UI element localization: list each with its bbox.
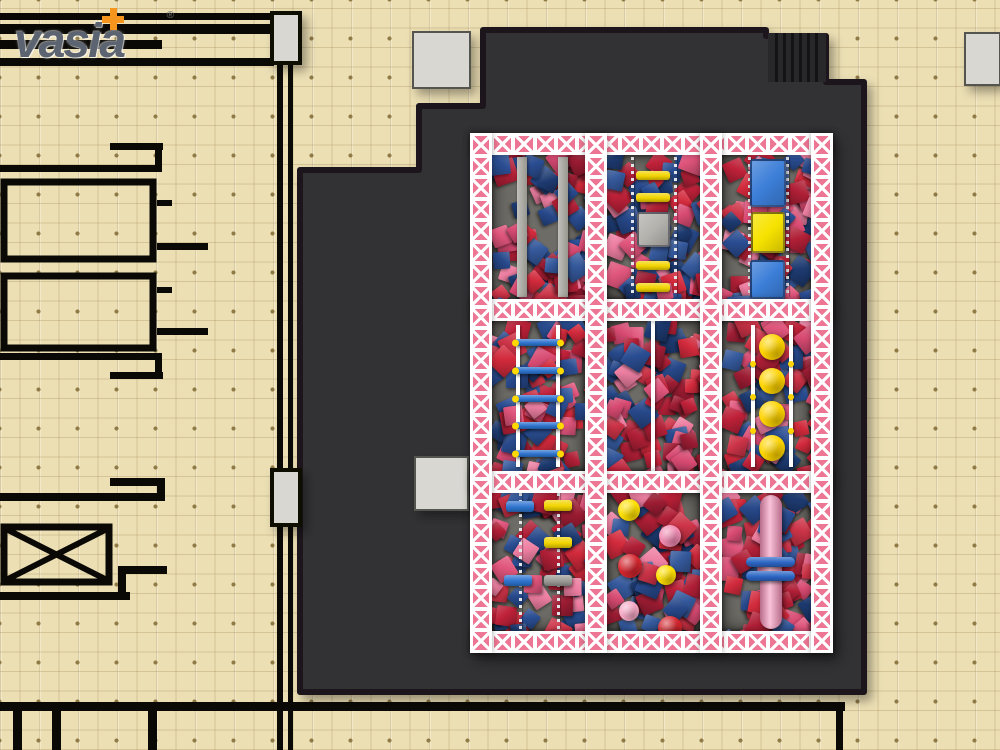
truss-cell — [641, 300, 662, 320]
truss-cell — [812, 242, 832, 264]
stair-step — [807, 33, 810, 82]
truss-cell — [812, 544, 832, 566]
truss-cell — [586, 522, 606, 544]
ninja-bar-gray — [544, 575, 572, 586]
platform-pad-gray — [637, 212, 670, 247]
truss-cell — [701, 307, 721, 329]
wall-stub — [157, 287, 172, 293]
truss-cell — [535, 472, 556, 492]
truss-cell — [556, 472, 577, 492]
truss-cell — [586, 587, 606, 609]
foam-pit-cell-r3c1 — [492, 493, 585, 631]
truss-band-vertical — [700, 133, 722, 653]
truss-cell — [812, 156, 832, 178]
wall-line — [110, 478, 165, 486]
truss-cell — [586, 199, 606, 221]
rung-yellow — [636, 171, 670, 180]
chain — [631, 157, 634, 297]
truss-cell — [586, 371, 606, 393]
truss-cell — [471, 156, 491, 178]
truss-cell — [471, 350, 491, 372]
truss-band-horizontal — [470, 133, 833, 155]
truss-cell — [701, 458, 721, 480]
chain — [557, 493, 560, 629]
truss-cell — [471, 199, 491, 221]
truss-cell — [812, 630, 832, 652]
foam-ball-pink — [659, 525, 681, 547]
truss-cell — [812, 393, 832, 415]
ninja-bar-yellow — [544, 500, 572, 511]
truss-cell — [701, 350, 721, 372]
wall-line — [836, 702, 843, 750]
truss-cell — [620, 472, 641, 492]
truss-cell — [556, 134, 577, 154]
truss-cell — [492, 300, 513, 320]
truss-cell — [701, 242, 721, 264]
rung-blue — [514, 422, 562, 429]
truss-cell — [701, 328, 721, 350]
foam-cube — [492, 155, 511, 176]
rung-cap — [512, 367, 519, 374]
rung-yellow — [636, 261, 670, 270]
truss-cell — [586, 328, 606, 350]
pillar — [413, 32, 470, 88]
wall-line — [0, 165, 158, 172]
truss-cell — [492, 472, 513, 492]
stair-step — [799, 33, 802, 82]
foam-ball-yellow — [656, 565, 676, 585]
truss-cell — [790, 300, 811, 320]
truss-cell — [768, 632, 789, 652]
truss-cell — [586, 630, 606, 652]
stair-step — [783, 33, 786, 82]
truss-cell — [620, 134, 641, 154]
truss-cell — [812, 307, 832, 329]
truss-cell — [812, 371, 832, 393]
scene: vasia ® — [0, 0, 1000, 750]
truss-cell — [586, 285, 606, 307]
ninja-bar-blue — [504, 575, 532, 586]
truss-cell — [812, 415, 832, 437]
truss-cell — [812, 350, 832, 372]
wall-stub — [157, 243, 208, 250]
truss-cell — [471, 242, 491, 264]
truss-cell — [471, 415, 491, 437]
chain — [786, 157, 789, 297]
truss-cell — [701, 436, 721, 458]
truss-cell — [471, 479, 491, 501]
truss-cell — [662, 472, 683, 492]
truss-cell — [586, 566, 606, 588]
wall-line — [0, 353, 157, 360]
truss-cell — [471, 328, 491, 350]
pole-ring-blue — [746, 557, 795, 567]
truss-cell — [586, 263, 606, 285]
truss-cell — [768, 134, 789, 154]
truss-cell — [586, 415, 606, 437]
rung-cap — [557, 367, 564, 374]
foam-cube — [678, 336, 700, 358]
foam-cube — [794, 434, 811, 454]
truss-cell — [701, 393, 721, 415]
wall-line — [288, 63, 293, 750]
truss-cell — [471, 220, 491, 242]
truss-cell — [701, 415, 721, 437]
truss-cell — [513, 300, 534, 320]
truss-cell — [471, 436, 491, 458]
rung-yellow — [636, 283, 670, 292]
truss-cell — [701, 609, 721, 631]
truss-cell — [701, 501, 721, 523]
truss-cell — [812, 285, 832, 307]
rung-blue — [514, 339, 562, 346]
truss-cell — [812, 479, 832, 501]
truss-band-horizontal — [470, 631, 833, 653]
truss-band-vertical — [811, 133, 833, 653]
rail-dot — [750, 394, 756, 400]
climb-pad-yellow — [751, 212, 785, 253]
truss-cell — [768, 472, 789, 492]
foam-cube — [800, 286, 811, 299]
climb-pad-blue — [750, 159, 786, 207]
ninja-bar-blue — [506, 501, 534, 512]
truss-cell — [586, 220, 606, 242]
ninja-bar-yellow — [544, 537, 572, 548]
truss-cell — [726, 632, 747, 652]
truss-cell — [701, 285, 721, 307]
chain — [519, 493, 522, 629]
truss-band-horizontal — [470, 299, 833, 321]
truss-cell — [471, 609, 491, 631]
rung-blue — [514, 367, 562, 374]
chain — [674, 157, 677, 297]
truss-cell — [586, 458, 606, 480]
rail-dot — [788, 394, 794, 400]
rung-blue — [514, 395, 562, 402]
truss-cell — [556, 632, 577, 652]
rung-cap — [512, 339, 519, 346]
rung-cap — [557, 450, 564, 457]
foam-ball-yellow — [618, 499, 640, 521]
rung-yellow — [636, 193, 670, 202]
foam-ball-pink — [619, 601, 639, 621]
wall-stub — [157, 200, 172, 206]
truss-cell — [586, 307, 606, 329]
foam-cube — [607, 327, 616, 343]
truss-cell — [471, 285, 491, 307]
truss-cell — [701, 220, 721, 242]
truss-cell — [586, 544, 606, 566]
stepping-disc — [759, 435, 785, 461]
truss-cell — [747, 472, 768, 492]
truss-cell — [586, 609, 606, 631]
rung-cap — [557, 422, 564, 429]
truss-cell — [471, 587, 491, 609]
rail-dot — [788, 428, 794, 434]
rung-cap — [512, 422, 519, 429]
foam-cube — [796, 464, 811, 471]
truss-cell — [701, 371, 721, 393]
truss-cell — [747, 632, 768, 652]
truss-cell — [641, 472, 662, 492]
wall-line — [0, 592, 130, 600]
truss-cell — [471, 263, 491, 285]
truss-cell — [641, 134, 662, 154]
truss-cell — [701, 544, 721, 566]
room-outline — [4, 276, 153, 348]
truss-band-vertical — [470, 133, 492, 653]
truss-cell — [471, 566, 491, 588]
truss-cell — [586, 350, 606, 372]
foam-cube — [801, 563, 811, 579]
stair-step — [815, 33, 818, 82]
truss-cell — [535, 134, 556, 154]
truss-cell — [492, 632, 513, 652]
truss-cell — [812, 436, 832, 458]
truss-cell — [701, 199, 721, 221]
truss-cell — [641, 632, 662, 652]
truss-cell — [812, 263, 832, 285]
stepping-disc — [759, 368, 785, 394]
truss-cell — [812, 177, 832, 199]
registered-mark: ® — [167, 10, 174, 21]
truss-cell — [812, 199, 832, 221]
truss-cell — [726, 472, 747, 492]
divider-rail — [651, 321, 655, 471]
stepping-disc — [759, 401, 785, 427]
wall-line — [0, 702, 845, 711]
truss-cell — [471, 501, 491, 523]
balance-beam — [558, 157, 568, 297]
room-outline — [4, 182, 153, 259]
truss-cell — [662, 632, 683, 652]
truss-cell — [586, 501, 606, 523]
pole-ring-blue — [746, 571, 795, 581]
truss-cell — [471, 522, 491, 544]
rail-dot — [750, 428, 756, 434]
foam-cube — [679, 432, 698, 451]
truss-cell — [726, 134, 747, 154]
rung-cap — [512, 450, 519, 457]
truss-cell — [586, 156, 606, 178]
truss-cell — [812, 220, 832, 242]
truss-cell — [812, 501, 832, 523]
truss-cell — [586, 134, 606, 156]
truss-cell — [812, 522, 832, 544]
wall-line — [52, 711, 61, 750]
truss-cell — [747, 300, 768, 320]
truss-cell — [471, 458, 491, 480]
foam-cube — [575, 403, 585, 420]
rung-cap — [557, 395, 564, 402]
logo-plus-icon — [102, 8, 124, 30]
truss-cell — [701, 630, 721, 652]
foam-cube — [493, 252, 511, 270]
foam-cube — [667, 239, 688, 260]
truss-band-horizontal — [470, 471, 833, 493]
brand-logo: vasia ® — [10, 12, 180, 72]
truss-cell — [812, 566, 832, 588]
rail-dot — [750, 361, 756, 367]
truss-cell — [513, 472, 534, 492]
truss-cell — [701, 566, 721, 588]
foam-cube — [501, 460, 524, 471]
foam-ball-red — [618, 554, 642, 578]
truss-cell — [747, 134, 768, 154]
truss-band-vertical — [585, 133, 607, 653]
wall-line — [13, 711, 22, 750]
pillar — [272, 13, 300, 63]
truss-cell — [812, 587, 832, 609]
truss-cell — [662, 300, 683, 320]
truss-cell — [471, 393, 491, 415]
truss-cell — [471, 134, 491, 156]
truss-cell — [586, 242, 606, 264]
truss-cell — [790, 134, 811, 154]
truss-cell — [586, 479, 606, 501]
pillar — [965, 33, 1000, 85]
rung-cap — [557, 339, 564, 346]
rung-cap — [512, 395, 519, 402]
truss-cell — [535, 300, 556, 320]
foam-cube — [726, 526, 742, 542]
truss-cell — [701, 156, 721, 178]
truss-cell — [701, 177, 721, 199]
truss-cell — [812, 328, 832, 350]
truss-cell — [471, 544, 491, 566]
truss-cell — [790, 632, 811, 652]
truss-cell — [620, 632, 641, 652]
truss-cell — [535, 632, 556, 652]
balance-beam — [517, 157, 527, 297]
truss-cell — [513, 632, 534, 652]
pillar — [415, 457, 468, 510]
rail-dot — [788, 361, 794, 367]
staircase — [768, 33, 826, 82]
wall-line — [148, 711, 157, 750]
truss-cell — [620, 300, 641, 320]
truss-cell — [586, 436, 606, 458]
truss-cell — [768, 300, 789, 320]
wall-stub — [157, 328, 208, 335]
truss-cell — [726, 300, 747, 320]
stair-step — [791, 33, 794, 82]
truss-cell — [662, 134, 683, 154]
climb-pad-blue — [750, 260, 785, 299]
truss-cell — [513, 134, 534, 154]
truss-cell — [586, 393, 606, 415]
foam-pit-structure — [470, 133, 833, 653]
truss-cell — [701, 479, 721, 501]
truss-cell — [812, 134, 832, 156]
truss-cell — [586, 177, 606, 199]
foam-pit-cell-r1c1 — [492, 155, 585, 299]
truss-cell — [556, 300, 577, 320]
foam-cube — [607, 155, 624, 170]
truss-cell — [812, 609, 832, 631]
truss-cell — [492, 134, 513, 154]
foam-cube — [552, 595, 574, 617]
rung-blue — [514, 450, 562, 457]
truss-cell — [701, 587, 721, 609]
truss-cell — [701, 134, 721, 156]
truss-cell — [471, 371, 491, 393]
truss-cell — [790, 472, 811, 492]
wall-line — [110, 372, 163, 379]
wall-line — [0, 493, 163, 501]
pillar — [272, 470, 300, 525]
wall-line — [277, 63, 283, 750]
truss-cell — [701, 263, 721, 285]
foam-cube — [492, 284, 511, 299]
truss-cell — [701, 522, 721, 544]
truss-cell — [471, 177, 491, 199]
truss-cell — [471, 630, 491, 652]
stepping-disc — [759, 334, 785, 360]
truss-cell — [812, 458, 832, 480]
stair-step — [775, 33, 778, 82]
truss-cell — [471, 307, 491, 329]
